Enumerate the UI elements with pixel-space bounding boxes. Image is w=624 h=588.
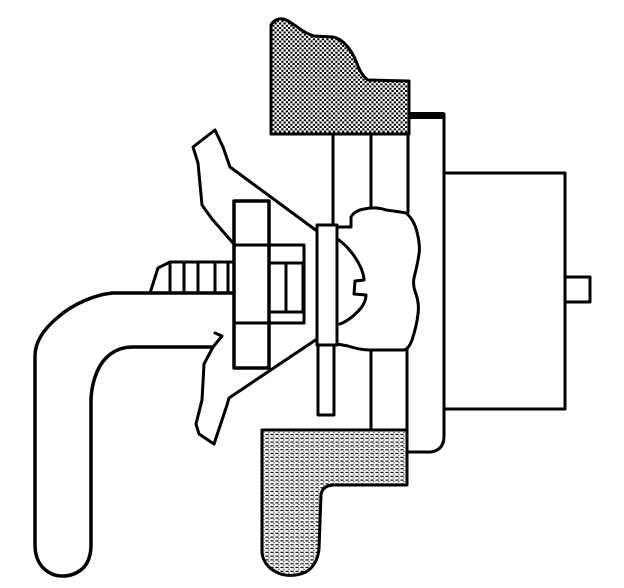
top-bracket-flange xyxy=(271,19,409,134)
washer-stem xyxy=(318,345,334,415)
bottom-bracket-flange xyxy=(262,430,407,575)
yoke-lower-arm-right xyxy=(214,339,317,444)
grommet-profile xyxy=(337,208,419,350)
mount-tab-top xyxy=(409,112,444,119)
housing-stub xyxy=(565,277,590,302)
housing-body xyxy=(444,173,565,409)
yoke-upper-arm-left xyxy=(193,130,233,243)
yoke-upper-arm-right xyxy=(215,130,317,231)
ribbed-rod-outline xyxy=(150,262,234,293)
handle-lever xyxy=(35,293,234,576)
figure-page xyxy=(0,0,624,588)
center-post xyxy=(234,201,269,368)
patent-figure-canvas xyxy=(0,0,624,588)
figure-shape-layer xyxy=(35,19,590,576)
washer-plate xyxy=(317,225,337,345)
